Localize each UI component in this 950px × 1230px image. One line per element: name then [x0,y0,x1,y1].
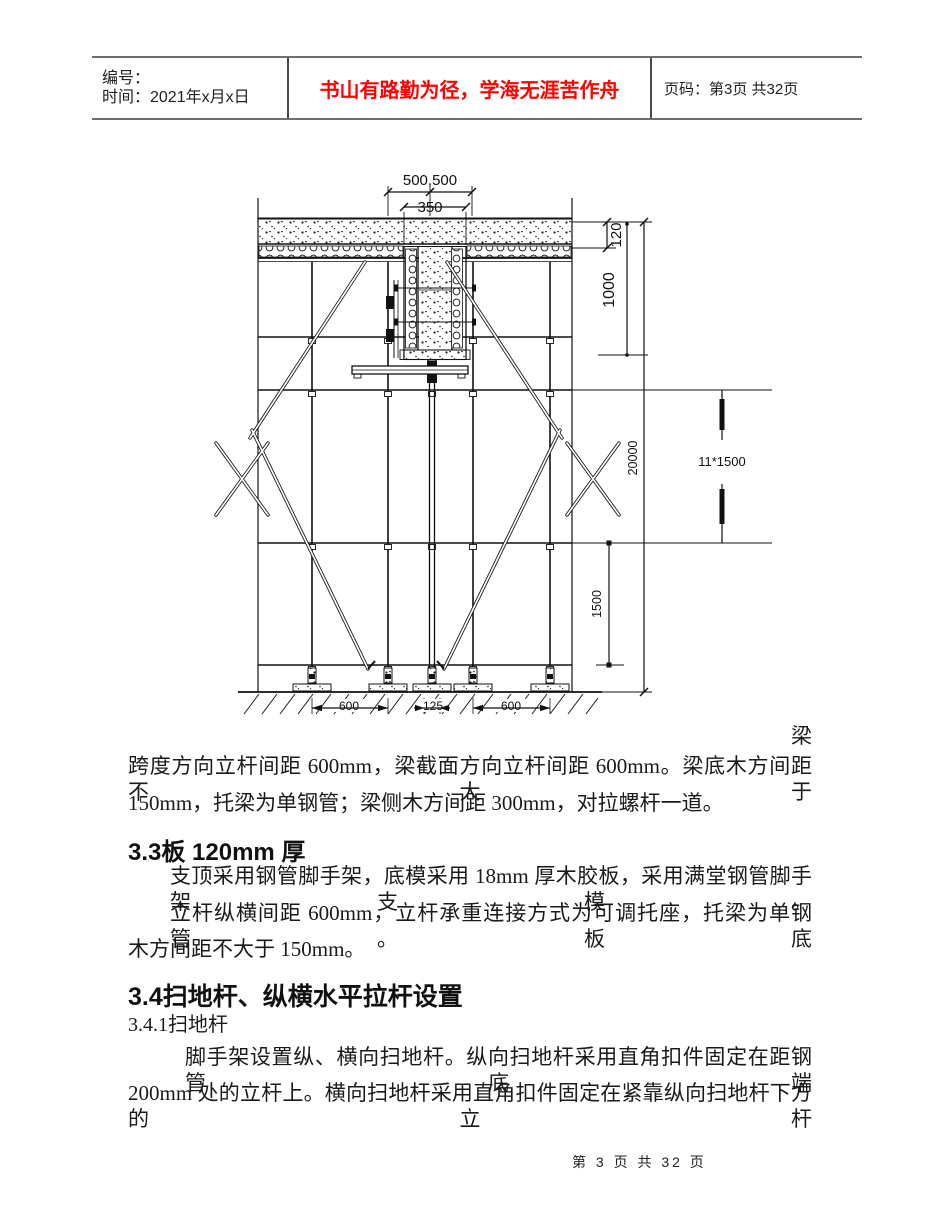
dim-top-spans-label: 500,500 [403,172,457,189]
dim-base-left-label: 600 [339,699,359,713]
section-3-3-para2-line2: 木方间距不大于 150mm。 [128,936,812,962]
footer-page-number: 第 3 页 共 32 页 [572,1152,707,1172]
dim-total-height-label: 20000 [626,441,640,476]
document-page: 编号： 时间：2021年x月x日 书山有路勤为径，学海无涯苦作舟 页码：第3页 … [0,0,950,1230]
section-3-3-heading: 3.3板 120mm 厚 [128,832,305,867]
dim-lift-spacing-label: 11*1500 [698,454,745,469]
dim-beam-width-label: 350 [417,199,442,216]
dim-beam-depth-label: 1000 [601,272,618,308]
dim-base-right-label: 600 [501,699,521,713]
dim-bottom-lift-label: 1500 [590,590,604,618]
drawing-linework [216,186,772,714]
paragraph-overflow-char: 梁 [128,720,812,750]
section-3-4-para-line2: 200mm 处的立杆上。横向扫地杆采用直角扣件固定在紧靠纵向扫地杆下方的立杆 [128,1080,812,1132]
section-3-4-1-subheading: 3.4.1扫地杆 [128,1012,812,1038]
dim-base-mid-label: 125 [423,699,443,713]
dim-slab-thickness-label: 120 [608,222,625,247]
beam-paragraph-line2: 150mm，托梁为单钢管；梁侧木方间距 300mm，对拉螺杆一道。 [128,790,812,816]
section-3-4-heading: 3.4扫地杆、纵横水平拉杆设置 [128,977,463,1013]
